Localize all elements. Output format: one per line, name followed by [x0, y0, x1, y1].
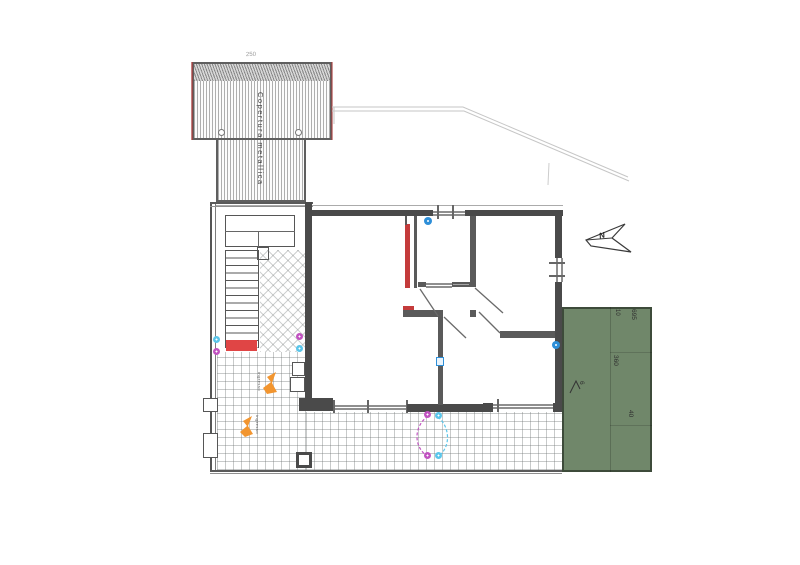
bottom-window2-tick [497, 399, 499, 412]
left-wall-niche-lower [203, 433, 218, 458]
entrance-label-lower: ingresso [255, 415, 260, 439]
cyan-drain-dot-top [435, 412, 442, 419]
north-label: N [598, 230, 606, 240]
stair-landing-divider-v [258, 231, 259, 247]
sliding-door-line-2 [426, 286, 452, 288]
blue-wall-marker [436, 357, 444, 366]
north-arrow [0, 0, 800, 565]
staircase [225, 250, 259, 348]
bottom-wall-center [407, 404, 483, 412]
drain-curves [0, 0, 800, 565]
right-window-tick-1 [549, 262, 565, 264]
bottom-window2-line-inner [493, 407, 553, 409]
bottom-window1-line-inner [333, 408, 407, 410]
entrance-arrows [0, 0, 800, 565]
building-top-wall-right [465, 210, 563, 216]
small-room-wall-left [418, 282, 426, 287]
red-wall-highlight [405, 224, 410, 288]
stairwell-top-edge-inner [210, 206, 313, 207]
magenta-fixture-dot-left-lower [213, 348, 220, 355]
sliding-door-line-1 [426, 283, 452, 285]
garden-grid-line-h2 [610, 425, 652, 426]
top-door-tick-2 [452, 205, 454, 219]
entrance-label-upper: ingresso [257, 372, 262, 396]
interior-wall-b [470, 216, 476, 287]
magenta-drain-dot-bottom [424, 452, 431, 459]
roof-red-accent-left [191, 62, 193, 140]
chimney-step-lower [290, 377, 305, 392]
garden-dim-40: 40 [627, 410, 634, 417]
garden-area [562, 307, 652, 472]
building-right-wall-upper [555, 216, 562, 258]
blue-fixture-dot-right [552, 341, 560, 349]
roof-post-circle-left [218, 129, 225, 136]
hallway-south-wall-left [403, 310, 443, 317]
garden-angle-mark [0, 0, 800, 565]
roof-post-circle-right [295, 129, 302, 136]
magenta-drain-dot-top [424, 411, 431, 418]
garden-area-label: 6 [578, 381, 585, 385]
roof-ridge-dimension: 250 [246, 52, 256, 58]
right-room-bottom-wall [500, 331, 555, 338]
terrace-parapet-line [216, 205, 563, 206]
bottom-wall-corner-left [299, 398, 333, 411]
interior-wall-a-west [405, 216, 407, 225]
tile-floor-terrace [306, 412, 562, 470]
top-door-tick-1 [437, 205, 439, 219]
right-window-tick-2 [549, 275, 565, 277]
bottom-window2-line-outer [493, 404, 553, 406]
floor-plan-canvas: Copertura metallica 250 ingresso ingress… [0, 0, 800, 565]
magenta-fixture-dot-right-upper [296, 333, 303, 340]
chimney-step-upper [292, 362, 305, 376]
roof-label: Copertura metallica [256, 92, 265, 192]
building-left-wall [305, 202, 312, 398]
garden-dim-695: 695 [630, 309, 637, 320]
red-landing-marker [226, 340, 257, 351]
boundary-line [0, 0, 800, 565]
terrace-bottom-edge-inner [210, 473, 562, 474]
cyan-fixture-dot-right-lower [296, 345, 303, 352]
blue-fixture-dot-top [424, 217, 432, 225]
garden-grid-line-h1 [610, 352, 652, 353]
interior-wall-a-east [414, 216, 417, 288]
cyan-drain-dot-bottom [435, 452, 442, 459]
terrace-pillar [296, 452, 312, 468]
bottom-wall-pillar [483, 403, 493, 412]
roof-ridge-band [194, 64, 330, 81]
garden-dim-360: 360 [612, 355, 619, 366]
garden-dim-10: 10 [614, 309, 620, 316]
stair-landing-divider-h [225, 231, 295, 232]
terrace-bottom-edge [210, 470, 562, 472]
left-wall-niche-upper [203, 398, 218, 412]
sliding-door-handle-dash [453, 284, 469, 285]
hallway-south-wall-right [470, 310, 476, 317]
cyan-fixture-dot-left-upper [213, 336, 220, 343]
stairwell-top-edge [210, 202, 313, 204]
roof-red-accent-right [331, 62, 333, 140]
door-leaves [0, 0, 800, 565]
garden-grid-line-v [610, 307, 611, 472]
bottom-window1-line-outer [333, 405, 407, 407]
